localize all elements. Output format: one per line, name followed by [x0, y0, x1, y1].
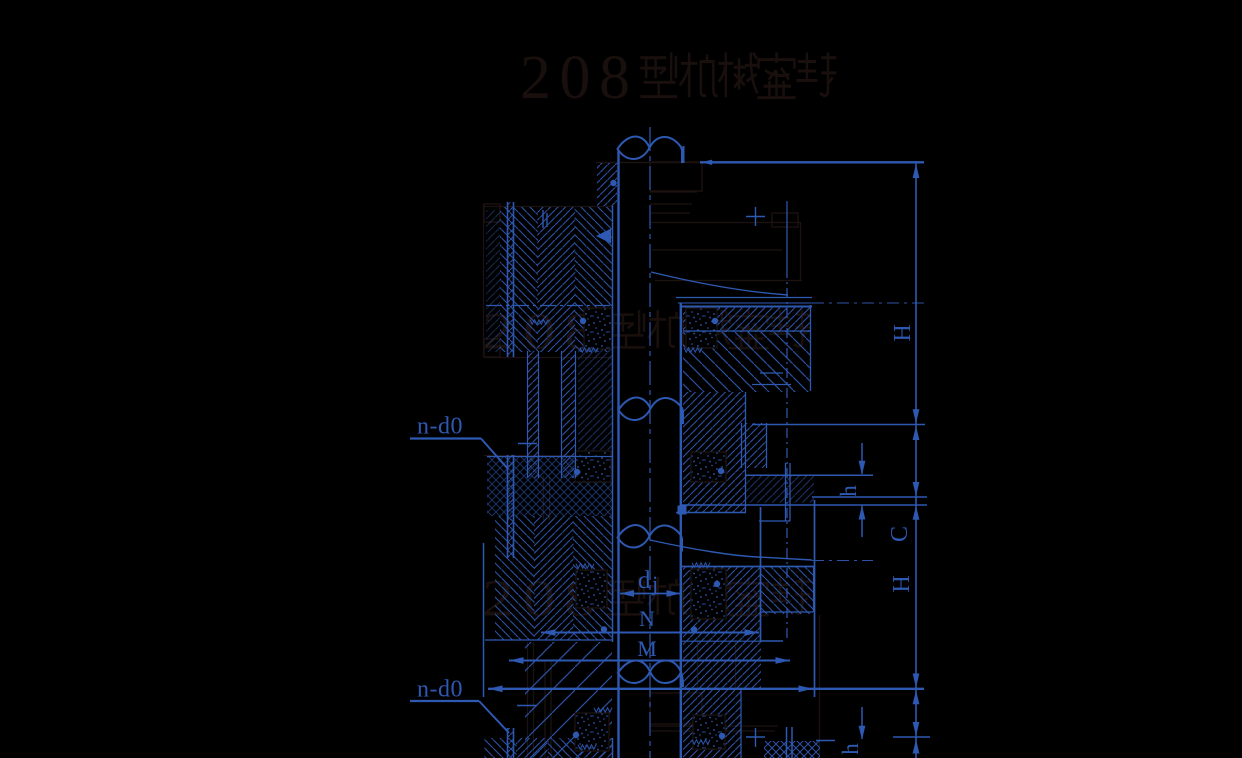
- svg-text:h: h: [838, 743, 863, 755]
- svg-text:208: 208: [0, 0, 115, 61]
- svg-text:H: H: [889, 575, 915, 592]
- svg-text:j: j: [651, 571, 658, 596]
- svg-text:n-d0: n-d0: [417, 677, 463, 703]
- svg-text:M: M: [637, 636, 657, 661]
- svg-text:h: h: [836, 485, 861, 497]
- svg-text:H: H: [890, 324, 916, 341]
- svg-text:C: C: [887, 526, 913, 542]
- svg-text:d: d: [638, 567, 651, 594]
- svg-text:N: N: [639, 606, 655, 631]
- svg-text:n-d0: n-d0: [417, 414, 463, 440]
